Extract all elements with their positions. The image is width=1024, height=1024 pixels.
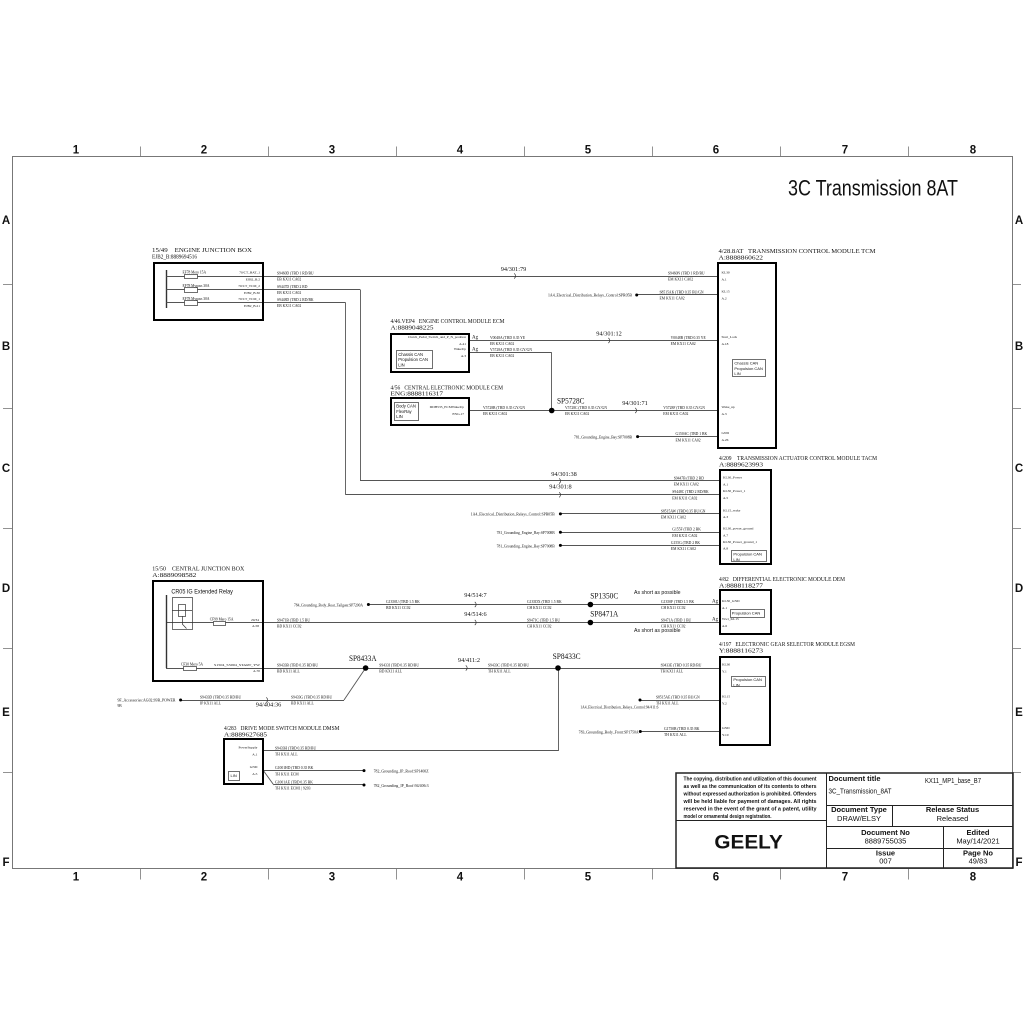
svg-text:29/34: 29/34 (251, 618, 259, 622)
svg-text:4/56 CENTRAL ELECTRONIC MODU: 4/56 CENTRAL ELECTRONIC MODULE CEM (391, 385, 504, 391)
svg-text:783_Grounding_Body_Front:SP175: 783_Grounding_Body_Front:SP1750A (579, 731, 639, 735)
svg-text:EB KX11 CA02: EB KX11 CA02 (277, 304, 301, 308)
svg-text:8889755035: 8889755035 (865, 837, 907, 846)
svg-text:LIN: LIN (734, 371, 740, 376)
svg-text:1: 1 (73, 872, 80, 884)
svg-text:BD KX11 ALL: BD KX11 ALL (277, 670, 301, 674)
svg-text:S9433C (TBD 0.35 RD/BU: S9433C (TBD 0.35 RD/BU (488, 663, 529, 667)
svg-text:9B: 9B (118, 704, 123, 708)
svg-text:D: D (2, 583, 10, 595)
svg-text:EJB2_B.30: EJB2_B.30 (244, 291, 260, 295)
svg-text:KL30_Power_ground_1: KL30_Power_ground_1 (723, 540, 757, 544)
svg-text:IP KX11 ALL: IP KX11 ALL (200, 702, 222, 706)
svg-text:A:8888118277: A:8888118277 (719, 584, 763, 590)
svg-text:S9433D (TBD 0.35 RD/BU: S9433D (TBD 0.35 RD/BU (200, 695, 242, 699)
svg-text:SP1350C: SP1350C (590, 591, 618, 601)
svg-text:EB KX11 CA02: EB KX11 CA02 (483, 412, 507, 416)
svg-text:94/301:8: 94/301:8 (549, 483, 571, 490)
svg-text:S9471A (TBD 1 BU: S9471A (TBD 1 BU (661, 618, 692, 622)
svg-text:S1504_S5004_START_YW: S1504_S5004_START_YW (214, 663, 261, 667)
svg-text:EB KX11 CA02: EB KX11 CA02 (490, 342, 514, 346)
svg-text:94/514:7: 94/514:7 (464, 592, 486, 599)
svg-text:A.5: A.5 (252, 772, 257, 776)
svg-text:LIN: LIN (396, 414, 403, 419)
svg-text:781_Grounding_Engine_Bay:SP700: 781_Grounding_Engine_Bay:SP7008B (497, 544, 556, 548)
svg-text:GND: GND (722, 431, 730, 435)
svg-text:F: F (1015, 857, 1022, 869)
svg-text:EM KX11 CA02: EM KX11 CA02 (668, 278, 693, 282)
svg-text:LIN: LIN (398, 363, 405, 368)
svg-text:94/301:71: 94/301:71 (622, 400, 648, 407)
svg-text:CH KX11 CC02: CH KX11 CC02 (661, 606, 686, 610)
svg-text:V0048B (TBD 0.35 YE: V0048B (TBD 0.35 YE (671, 336, 707, 340)
svg-text:A.26: A.26 (722, 438, 729, 442)
svg-text:G135DX (TBD 1.5 BK: G135DX (TBD 1.5 BK (527, 600, 562, 604)
svg-text:CH KX11 CC02: CH KX11 CC02 (527, 625, 552, 629)
svg-text:5: 5 (585, 872, 592, 884)
svg-text:KL30: KL30 (722, 662, 730, 666)
svg-text:Ag: Ag (472, 335, 479, 340)
svg-text:94/514:6: 94/514:6 (464, 611, 486, 618)
svg-text:A.3: A.3 (461, 354, 466, 358)
svg-text:S9448D (TBD 2 RD/BK: S9448D (TBD 2 RD/BK (277, 298, 314, 302)
svg-text:LIN: LIN (733, 682, 739, 687)
svg-text:Start_Lock: Start_Lock (722, 335, 738, 339)
svg-text:SP8433C: SP8433C (553, 651, 581, 661)
svg-text:KL30_GND: KL30_GND (722, 599, 740, 603)
svg-text:3C Transmission 8AT: 3C Transmission 8AT (788, 176, 958, 201)
svg-text:Ag: Ag (712, 600, 719, 605)
svg-text:007: 007 (879, 857, 892, 866)
svg-text:2: 2 (201, 872, 207, 884)
svg-text:94/404:36: 94/404:36 (256, 702, 282, 709)
svg-text:B: B (1015, 341, 1023, 353)
svg-text:EM KX11 CA02: EM KX11 CA02 (671, 547, 696, 551)
svg-text:ENG.17: ENG.17 (452, 412, 464, 416)
svg-text:3: 3 (329, 872, 335, 884)
svg-text:F: F (2, 857, 9, 869)
svg-text:S9460N (TBD 1 RD/BU: S9460N (TBD 1 RD/BU (668, 271, 705, 275)
svg-text:A.58: A.58 (252, 624, 259, 628)
svg-text:EB KX11 CA02: EB KX11 CA02 (277, 278, 301, 282)
svg-text:Chassis CAN: Chassis CAN (398, 352, 423, 357)
svg-text:TH KX11 ECM1 | 9203: TH KX11 ECM1 | 9203 (275, 787, 311, 791)
svg-text:model or ornamental design reg: model or ornamental design registration. (684, 814, 772, 820)
svg-text:EM KX11 CA02: EM KX11 CA02 (661, 516, 686, 520)
svg-text:KL30_power_ground: KL30_power_ground (723, 527, 754, 531)
svg-text:Y.10: Y.10 (722, 733, 729, 737)
svg-text:G1001HD (TBD 0.35 BK: G1001HD (TBD 0.35 BK (275, 766, 314, 770)
svg-text:S9433H (TBD 0.35 RD/BU: S9433H (TBD 0.35 RD/BU (275, 746, 317, 750)
svg-text:15/50 CENTRAL JUNCTION BOX: 15/50 CENTRAL JUNCTION BOX (152, 567, 245, 573)
svg-text:S9433I (TBD 0.35 RD/BU: S9433I (TBD 0.35 RD/BU (379, 663, 419, 667)
svg-text:EF78 Mypass 30A: EF78 Mypass 30A (183, 297, 210, 301)
svg-text:C: C (1015, 463, 1023, 475)
svg-text:Propulsion CAN: Propulsion CAN (733, 677, 762, 682)
svg-text:S9433G (TBD 0.35 RD/BU: S9433G (TBD 0.35 RD/BU (291, 695, 333, 699)
svg-text:S9448C (TBD 2 RD/BK: S9448C (TBD 2 RD/BK (672, 490, 709, 494)
svg-text:Y.2: Y.2 (722, 701, 727, 705)
svg-text:7: 7 (842, 872, 848, 884)
svg-text:G155G (TBD 2 BK: G155G (TBD 2 BK (671, 541, 701, 545)
svg-text:EM KX11 CA02: EM KX11 CA02 (660, 297, 685, 301)
svg-text:A:8889627685: A:8889627685 (224, 732, 267, 738)
svg-text:EJB2_B.21: EJB2_B.21 (244, 304, 260, 308)
svg-text:BD KX11 ALL: BD KX11 ALL (379, 670, 403, 674)
svg-text:A.5: A.5 (723, 496, 728, 500)
svg-text:A.41: A.41 (459, 342, 466, 346)
svg-text:S9447D (TBD 2 RD: S9447D (TBD 2 RD (277, 285, 308, 289)
svg-text:EM KX11 CA02: EM KX11 CA02 (676, 438, 701, 442)
svg-text:TH KX11 ALL: TH KX11 ALL (664, 733, 687, 737)
svg-text:EB KX11 CA02: EB KX11 CA02 (277, 291, 301, 295)
svg-text:V5728C (TBD 0.35 GY/GN: V5728C (TBD 0.35 GY/GN (565, 406, 607, 410)
svg-text:S9447B (TBD 2 RD: S9447B (TBD 2 RD (674, 476, 705, 480)
svg-text:Ag: Ag (472, 347, 479, 352)
svg-text:EJB2_B.2: EJB2_B.2 (246, 277, 261, 281)
svg-text:KL30_Power: KL30_Power (723, 475, 743, 479)
svg-text:S9471B (TBD 1.5 BU: S9471B (TBD 1.5 BU (277, 618, 310, 622)
svg-text:4: 4 (457, 872, 464, 884)
svg-text:LIN: LIN (733, 557, 739, 562)
svg-text:6: 6 (713, 872, 719, 884)
svg-text:TH KX11 ALL: TH KX11 ALL (275, 753, 298, 757)
svg-text:G1350U (TBD 1.5 BK: G1350U (TBD 1.5 BK (386, 600, 420, 604)
svg-text:A.70: A.70 (253, 669, 260, 673)
svg-text:Released: Released (937, 814, 969, 823)
svg-text:4/82 DIFFERENTIAL ELECTRONIC: 4/82 DIFFERENTIAL ELECTRONIC MODULE DEM (719, 577, 846, 583)
svg-text:EF78 Mypass 30A: EF78 Mypass 30A (183, 284, 210, 288)
svg-text:1A4_Electrical_Distribution_Re: 1A4_Electrical_Distribution_Relays_Contr… (548, 294, 633, 298)
svg-text:EM KX11 CA02: EM KX11 CA02 (674, 483, 699, 487)
svg-text:GEELY: GEELY (714, 833, 783, 854)
svg-text:Y.1: Y.1 (722, 669, 727, 673)
svg-text:E: E (1015, 707, 1023, 719)
svg-text:DRAW/ELSY: DRAW/ELSY (837, 814, 881, 823)
svg-text:KL30_Power_1: KL30_Power_1 (723, 489, 746, 493)
svg-text:SP8471A: SP8471A (590, 609, 619, 619)
svg-text:6: 6 (713, 145, 719, 157)
svg-text:EM KX11 CA02: EM KX11 CA02 (672, 534, 697, 538)
svg-text:ENG:8888116317: ENG:8888116317 (391, 392, 444, 398)
svg-text:A: A (1015, 215, 1023, 227)
svg-text:94/411:2: 94/411:2 (458, 657, 480, 664)
svg-text:KL15: KL15 (722, 694, 730, 698)
svg-text:reserved in the event of the g: reserved in the event of the grant of a … (684, 807, 817, 813)
svg-text:4/197 ELECTRONIC GEAR SELECT: 4/197 ELECTRONIC GEAR SELECTOR MODULE EG… (719, 642, 856, 648)
svg-text:BD KX11 CC02: BD KX11 CC02 (386, 606, 411, 610)
svg-text:TH KX11 ECM: TH KX11 ECM (275, 772, 299, 776)
svg-text:49/83: 49/83 (969, 857, 988, 866)
svg-text:S9433B (TBD 0.35 RD/BU: S9433B (TBD 0.35 RD/BU (277, 663, 318, 667)
svg-text:A: A (2, 215, 10, 227)
svg-text:A.3: A.3 (722, 412, 727, 416)
svg-text:S8515AW (TBD 0.35 BU/GN: S8515AW (TBD 0.35 BU/GN (661, 509, 706, 513)
svg-text:FlexRay: FlexRay (396, 409, 412, 414)
svg-text:KL30: KL30 (722, 270, 730, 274)
svg-text:BD KX11 CC02: BD KX11 CC02 (277, 625, 302, 629)
svg-text:A.1: A.1 (723, 482, 728, 486)
svg-text:EF78 Mero 15A: EF78 Mero 15A (183, 270, 207, 274)
svg-text:TH KX11 ALL: TH KX11 ALL (661, 670, 684, 674)
svg-text:94/301:38: 94/301:38 (551, 471, 577, 478)
svg-text:784_Grounding_Body_Rear_Tailga: 784_Grounding_Body_Rear_Tailgate:SP7200A (294, 603, 363, 607)
svg-text:4/46.VEP4 ENGINE CONTROL MOD: 4/46.VEP4 ENGINE CONTROL MODULE ECM (391, 319, 506, 325)
svg-text:A.1: A.1 (252, 752, 257, 756)
svg-text:4/28.8AT TRANSMISSION CONTRO: 4/28.8AT TRANSMISSION CONTROL MODULE TCM (719, 249, 877, 255)
svg-text:1A4_Electrical_Distribution_Re: 1A4_Electrical_Distribution_Relays_Contr… (580, 705, 658, 709)
svg-text:G150AC (TBD 1 BK: G150AC (TBD 1 BK (676, 432, 708, 436)
svg-text:Ag: Ag (712, 618, 719, 623)
svg-text:A:8889048225: A:8889048225 (391, 326, 434, 332)
svg-text:EB KX11 CA02: EB KX11 CA02 (565, 412, 589, 416)
svg-text:A.3: A.3 (723, 515, 728, 519)
svg-text:782_Grounding_IP_Roof:SP1400Z: 782_Grounding_IP_Roof:SP1400Z (374, 770, 429, 774)
svg-text:GND: GND (722, 726, 730, 730)
svg-text:EJB2_B:8889694516: EJB2_B:8889694516 (152, 254, 197, 260)
svg-text:V5728B (TBD 0.35 GY/GN: V5728B (TBD 0.35 GY/GN (483, 406, 525, 410)
svg-text:2: 2 (201, 145, 207, 157)
svg-text:CF99 Mero 15A: CF99 Mero 15A (210, 617, 234, 621)
svg-text:70/CT_TCM_2: 70/CT_TCM_2 (238, 284, 260, 288)
svg-text:BD KX11 ALL: BD KX11 ALL (291, 702, 315, 706)
svg-text:Body CAN: Body CAN (396, 404, 416, 409)
svg-text:G155F (TBD 2 BK: G155F (TBD 2 BK (672, 528, 701, 532)
svg-text:Propulsion CAN: Propulsion CAN (732, 611, 761, 616)
svg-text:G1001AE (TBD 0.35 BK: G1001AE (TBD 0.35 BK (275, 780, 313, 784)
svg-text:1A4_Electrical_Distribution_Re: 1A4_Electrical_Distribution_Relays_Contr… (471, 513, 556, 517)
svg-text:as well as the communication o: as well as the communication of its cont… (684, 784, 817, 790)
svg-text:Propulsion CAN: Propulsion CAN (398, 357, 428, 362)
svg-text:4/209 TRANSMISSION ACTUATOR: 4/209 TRANSMISSION ACTUATOR CONTROL MODU… (719, 456, 878, 462)
svg-text:70/CT_TCM_1: 70/CT_TCM_1 (238, 297, 260, 301)
svg-text:S9471C (TBD 1.5 BU: S9471C (TBD 1.5 BU (527, 618, 560, 622)
svg-text:EB KX11 CA02: EB KX11 CA02 (490, 354, 514, 358)
svg-text:Y:8888116273: Y:8888116273 (719, 648, 763, 654)
svg-text:A.18: A.18 (722, 342, 729, 346)
svg-text:Clutch_Pedal_Switch_and_P_N_po: Clutch_Pedal_Switch_and_P_N_position (408, 335, 466, 339)
svg-text:B: B (2, 341, 10, 353)
svg-text:781_Grounding_Engine_Bay:SP700: 781_Grounding_Engine_Bay:SP7008B (497, 531, 556, 535)
svg-text:V5728F (TBD 0.35 GY/GN: V5728F (TBD 0.35 GY/GN (663, 406, 705, 410)
svg-text:Wake_up: Wake_up (722, 405, 735, 409)
svg-text:TH KX11 ALL: TH KX11 ALL (656, 702, 679, 706)
svg-text:EM KX11 CA02: EM KX11 CA02 (672, 497, 697, 501)
svg-text:V5728A (TBD 0.35 GY/GN: V5728A (TBD 0.35 GY/GN (490, 348, 532, 352)
svg-text:KL15: KL15 (722, 289, 730, 293)
svg-text:A.1: A.1 (722, 277, 727, 281)
svg-text:SP5728C: SP5728C (557, 395, 585, 405)
svg-text:70/CT_BAT_1: 70/CT_BAT_1 (239, 270, 260, 274)
svg-text:3: 3 (329, 145, 335, 157)
svg-text:S8515AE (TBD 0.35 BU/GN: S8515AE (TBD 0.35 BU/GN (656, 695, 700, 699)
svg-text:94/301:12: 94/301:12 (596, 330, 622, 337)
svg-text:A.6: A.6 (722, 624, 727, 628)
svg-text:As short as possible: As short as possible (634, 628, 681, 634)
svg-text:Propulsion CAN: Propulsion CAN (734, 366, 763, 371)
svg-text:V0048A (TBD 0.35 YE: V0048A (TBD 0.35 YE (490, 336, 526, 340)
svg-text:781_Grounding_Engine_Bay:SP700: 781_Grounding_Engine_Bay:SP7008B (574, 436, 633, 440)
svg-text:782_Grounding_IP_Roof:94/406:3: 782_Grounding_IP_Roof:94/406:3 (374, 784, 429, 788)
svg-text:CH KX11 CC02: CH KX11 CC02 (527, 606, 552, 610)
svg-text:TH KX11 ALL: TH KX11 ALL (488, 670, 511, 674)
svg-text:5: 5 (585, 145, 592, 157)
svg-text:3C_Transmission_8AT: 3C_Transmission_8AT (829, 787, 892, 796)
svg-text:A:8889623993: A:8889623993 (719, 462, 763, 468)
svg-text:LIN: LIN (231, 773, 237, 778)
svg-text:The copying, distribution and: The copying, distribution and utilizatio… (684, 777, 817, 783)
svg-text:8: 8 (970, 145, 977, 157)
svg-text:A:8889098582: A:8889098582 (152, 573, 196, 579)
svg-text:E: E (2, 707, 10, 719)
svg-text:CF30 Mero 5A: CF30 Mero 5A (181, 662, 203, 666)
svg-text:SP8433A: SP8433A (349, 653, 377, 663)
svg-text:94/301:79: 94/301:79 (501, 266, 527, 273)
svg-text:9F_Accessories:AG02.S9B_POWER: 9F_Accessories:AG02.S9B_POWER (118, 699, 177, 703)
svg-text:7: 7 (842, 145, 848, 157)
svg-text:WakeUp: WakeUp (454, 347, 466, 351)
svg-text:A.7: A.7 (723, 534, 728, 538)
svg-text:S9433E (TBD 0.35 RD/BU: S9433E (TBD 0.35 RD/BU (661, 663, 702, 667)
svg-text:G1750B (TBD 0.35 BK: G1750B (TBD 0.35 BK (664, 727, 700, 731)
svg-text:1: 1 (73, 145, 80, 157)
svg-text:S8515AK (TBD 0.35 BU/GN: S8515AK (TBD 0.35 BU/GN (660, 290, 704, 294)
svg-text:May/14/2021: May/14/2021 (956, 837, 999, 846)
svg-text:without expressed authorizatio: without expressed authorization is prohi… (683, 792, 817, 798)
svg-text:G1350F (TBD 1.5 BK: G1350F (TBD 1.5 BK (661, 600, 695, 604)
svg-text:DDH535_ECMWakeUp: DDH535_ECMWakeUp (430, 405, 465, 409)
svg-text:Chassis CAN: Chassis CAN (734, 361, 758, 366)
svg-text:EM KX11 CA02: EM KX11 CA02 (663, 412, 688, 416)
svg-text:D: D (1015, 583, 1023, 595)
svg-text:KX11_MP1_base_B7: KX11_MP1_base_B7 (925, 778, 981, 785)
svg-text:Document Type: Document Type (831, 805, 887, 814)
svg-text:As short as possible: As short as possible (634, 590, 681, 596)
svg-text:Propulsion CAN: Propulsion CAN (733, 552, 762, 557)
svg-text:C: C (2, 463, 10, 475)
svg-text:A:8888860622: A:8888860622 (719, 255, 764, 261)
svg-text:EM KX11 CA02: EM KX11 CA02 (671, 342, 696, 346)
svg-text:A.2: A.2 (722, 296, 727, 300)
svg-text:GND: GND (250, 765, 258, 769)
svg-text:15/49 ENGINE JUNCTION BOX: 15/49 ENGINE JUNCTION BOX (152, 248, 253, 254)
svg-text:8: 8 (970, 872, 977, 884)
svg-text:Release Status: Release Status (926, 805, 979, 814)
svg-text:KL15_wake: KL15_wake (723, 508, 741, 512)
svg-text:PowerSupply: PowerSupply (239, 745, 258, 749)
svg-text:A.1: A.1 (722, 606, 727, 610)
svg-text:will be held liable for paymen: will be held liable for payment of damag… (683, 799, 817, 805)
svg-text:4: 4 (457, 145, 464, 157)
svg-text:Document title: Document title (829, 774, 881, 783)
svg-text:4/283 DRIVE MODE SWITCH MODU: 4/283 DRIVE MODE SWITCH MODULE DMSM (224, 726, 340, 732)
svg-text:A.8: A.8 (723, 547, 728, 551)
svg-text:CR05 IG Extended Relay: CR05 IG Extended Relay (171, 589, 233, 596)
svg-text:S9460D (TBD 1 RD/BU: S9460D (TBD 1 RD/BU (277, 271, 314, 275)
